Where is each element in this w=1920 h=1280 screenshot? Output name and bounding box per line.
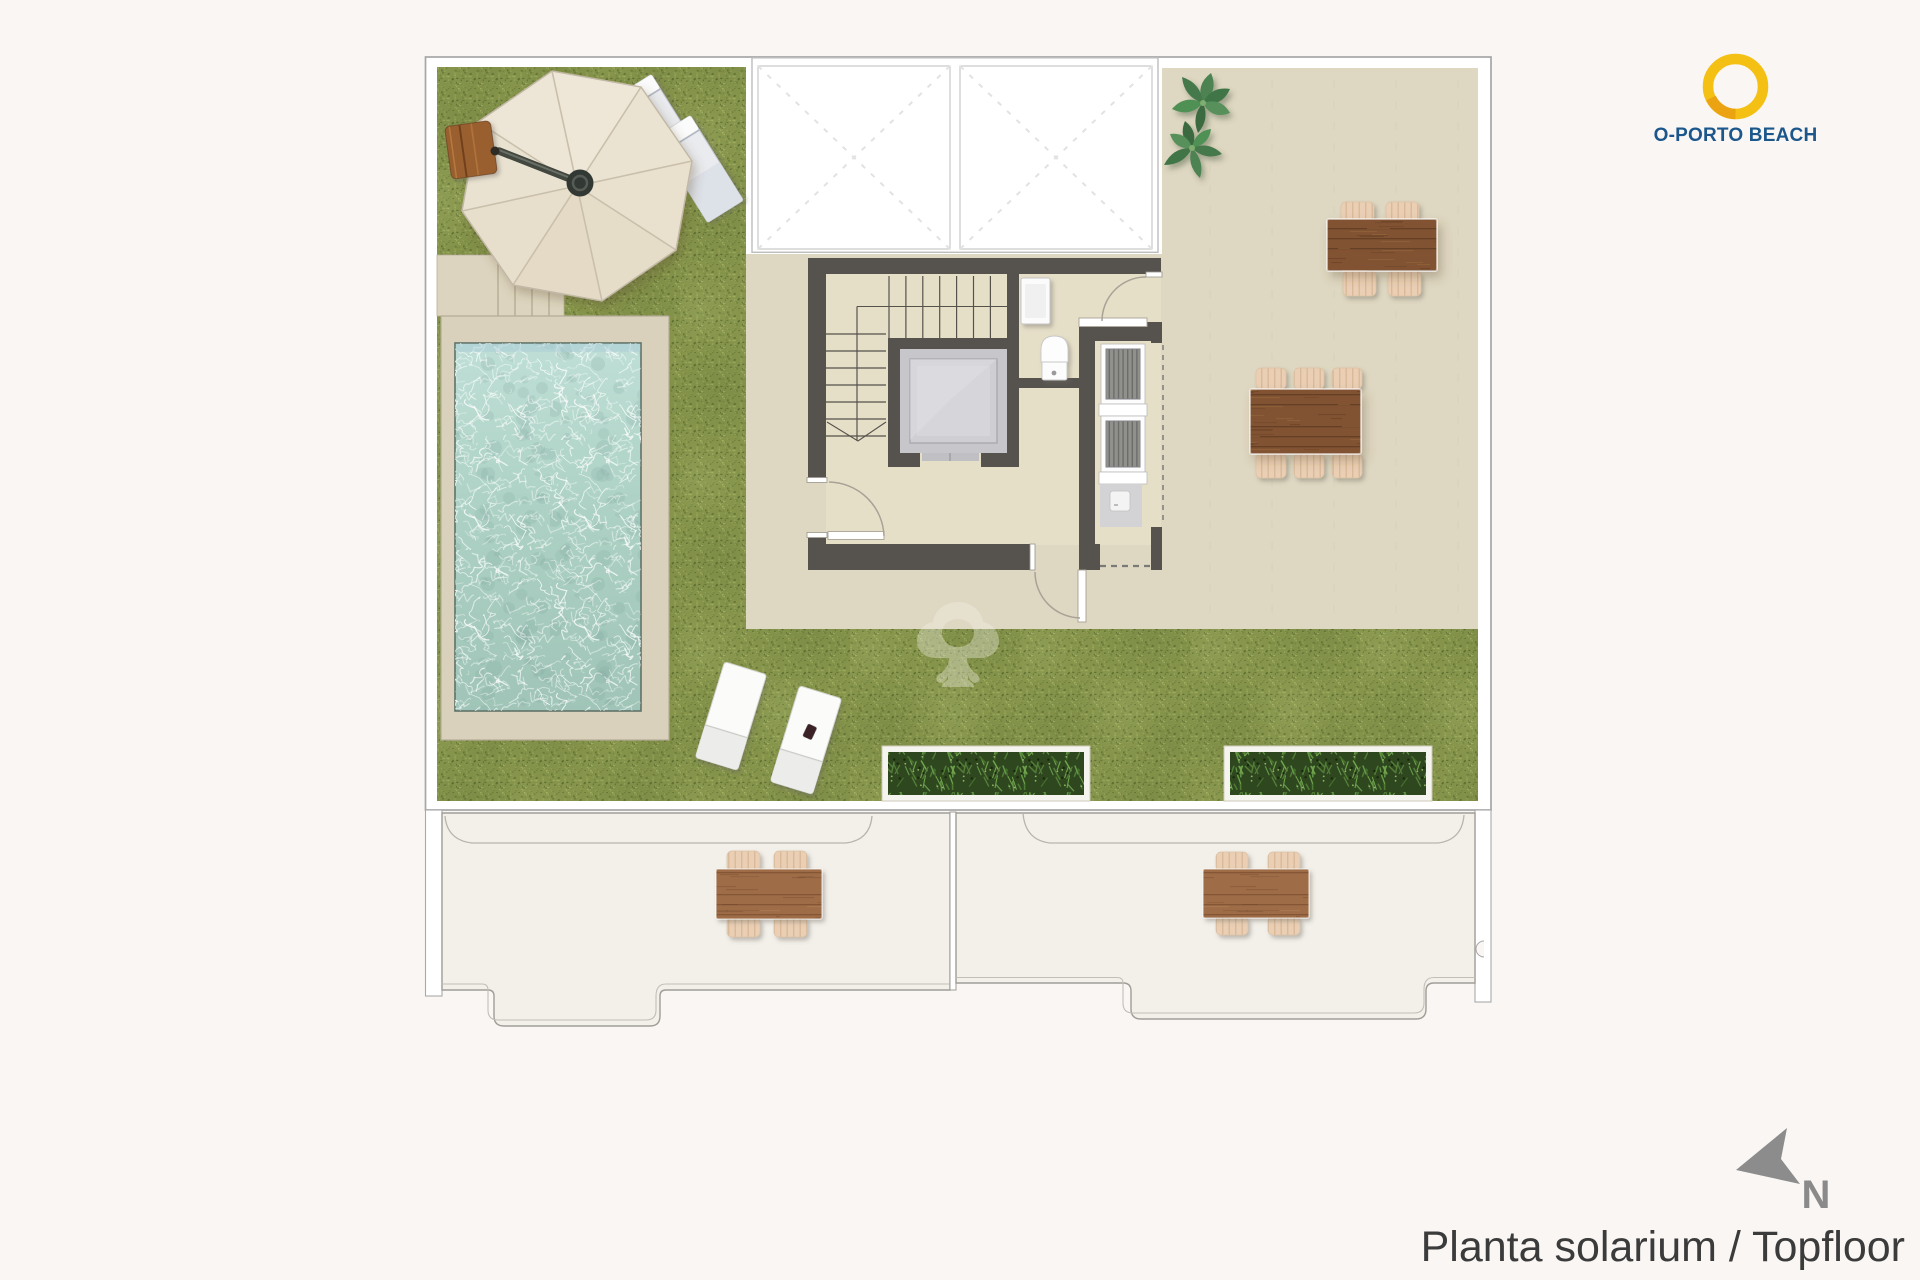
svg-text:N: N (1802, 1173, 1831, 1217)
svg-text:O-PORTO BEACH: O-PORTO BEACH (1654, 125, 1818, 146)
svg-text:Planta solarium / Topfloor: Planta solarium / Topfloor (1421, 1223, 1905, 1271)
